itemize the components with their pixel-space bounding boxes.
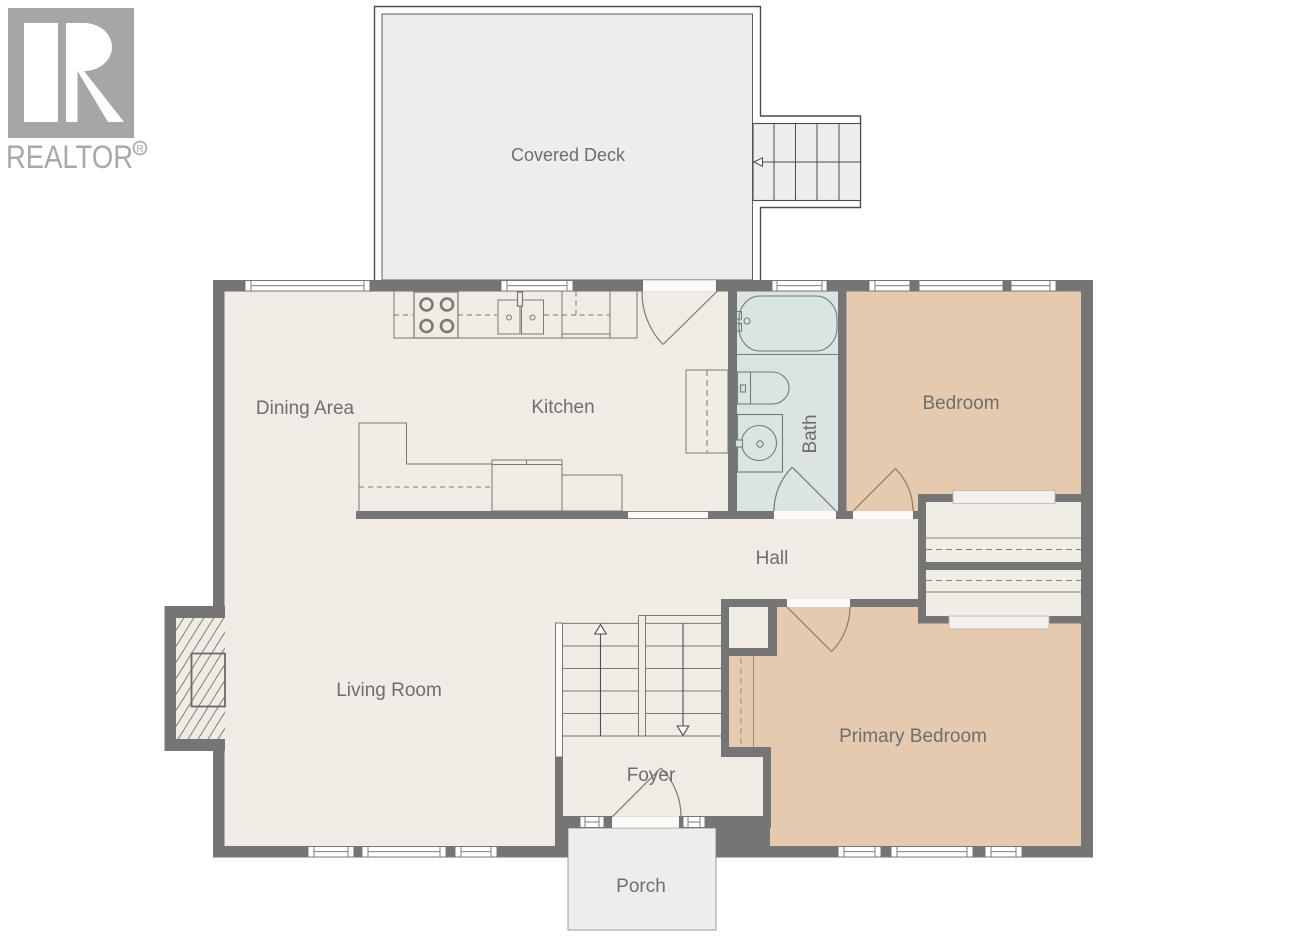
svg-text:Living Room: Living Room bbox=[336, 680, 442, 701]
svg-text:Kitchen: Kitchen bbox=[531, 397, 594, 418]
svg-text:Bath: Bath bbox=[800, 414, 821, 453]
svg-text:Porch: Porch bbox=[616, 876, 666, 897]
svg-text:Foyer: Foyer bbox=[627, 765, 676, 786]
svg-text:Hall: Hall bbox=[756, 548, 789, 569]
svg-text:R: R bbox=[136, 144, 143, 155]
svg-text:Bedroom: Bedroom bbox=[922, 393, 999, 414]
svg-text:Covered Deck: Covered Deck bbox=[511, 145, 626, 165]
svg-text:Primary Bedroom: Primary Bedroom bbox=[839, 726, 987, 747]
svg-text:Dining Area: Dining Area bbox=[256, 398, 355, 419]
svg-text:REALTOR: REALTOR bbox=[6, 139, 133, 175]
